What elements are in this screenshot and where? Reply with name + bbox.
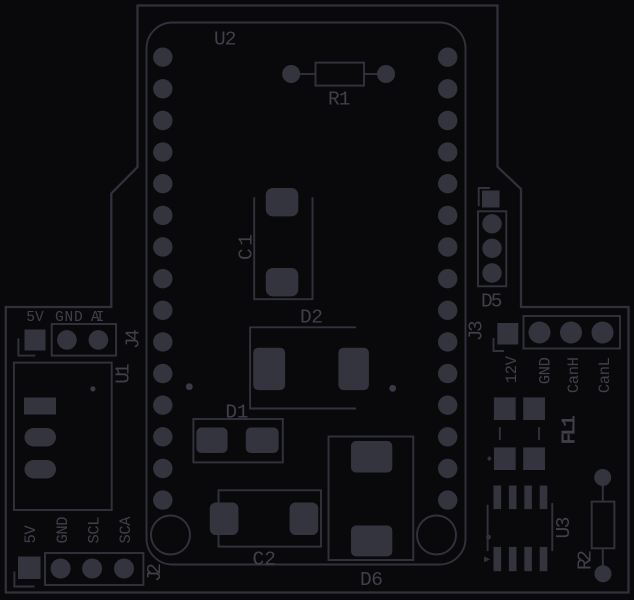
svg-text:C2: C2 [253, 549, 277, 571]
svg-text:GND: GND [54, 517, 72, 544]
svg-text:R2: R2 [575, 550, 597, 570]
svg-text:D2: D2 [300, 307, 323, 329]
svg-text:U1: U1 [112, 363, 134, 384]
svg-text:D1: D1 [225, 401, 248, 423]
svg-text:R1: R1 [328, 89, 351, 111]
svg-text:CanH: CanH [565, 357, 583, 393]
svg-text:J4: J4 [123, 329, 145, 349]
svg-text:U2: U2 [214, 29, 237, 51]
svg-text:U3: U3 [553, 517, 575, 539]
svg-text:CanL: CanL [596, 357, 614, 393]
svg-text:SCL: SCL [86, 517, 104, 544]
svg-text:5V: 5V [26, 310, 44, 326]
svg-text:D5: D5 [481, 290, 503, 312]
svg-text:FL1: FL1 [559, 415, 581, 445]
svg-text:5V: 5V [22, 525, 40, 544]
svg-text:GND: GND [537, 357, 555, 384]
svg-text:D6: D6 [360, 569, 383, 591]
svg-text:J2: J2 [144, 563, 166, 582]
svg-text:12V: 12V [503, 355, 521, 383]
svg-text:SCA: SCA [117, 516, 135, 544]
svg-text:J3: J3 [466, 320, 488, 341]
